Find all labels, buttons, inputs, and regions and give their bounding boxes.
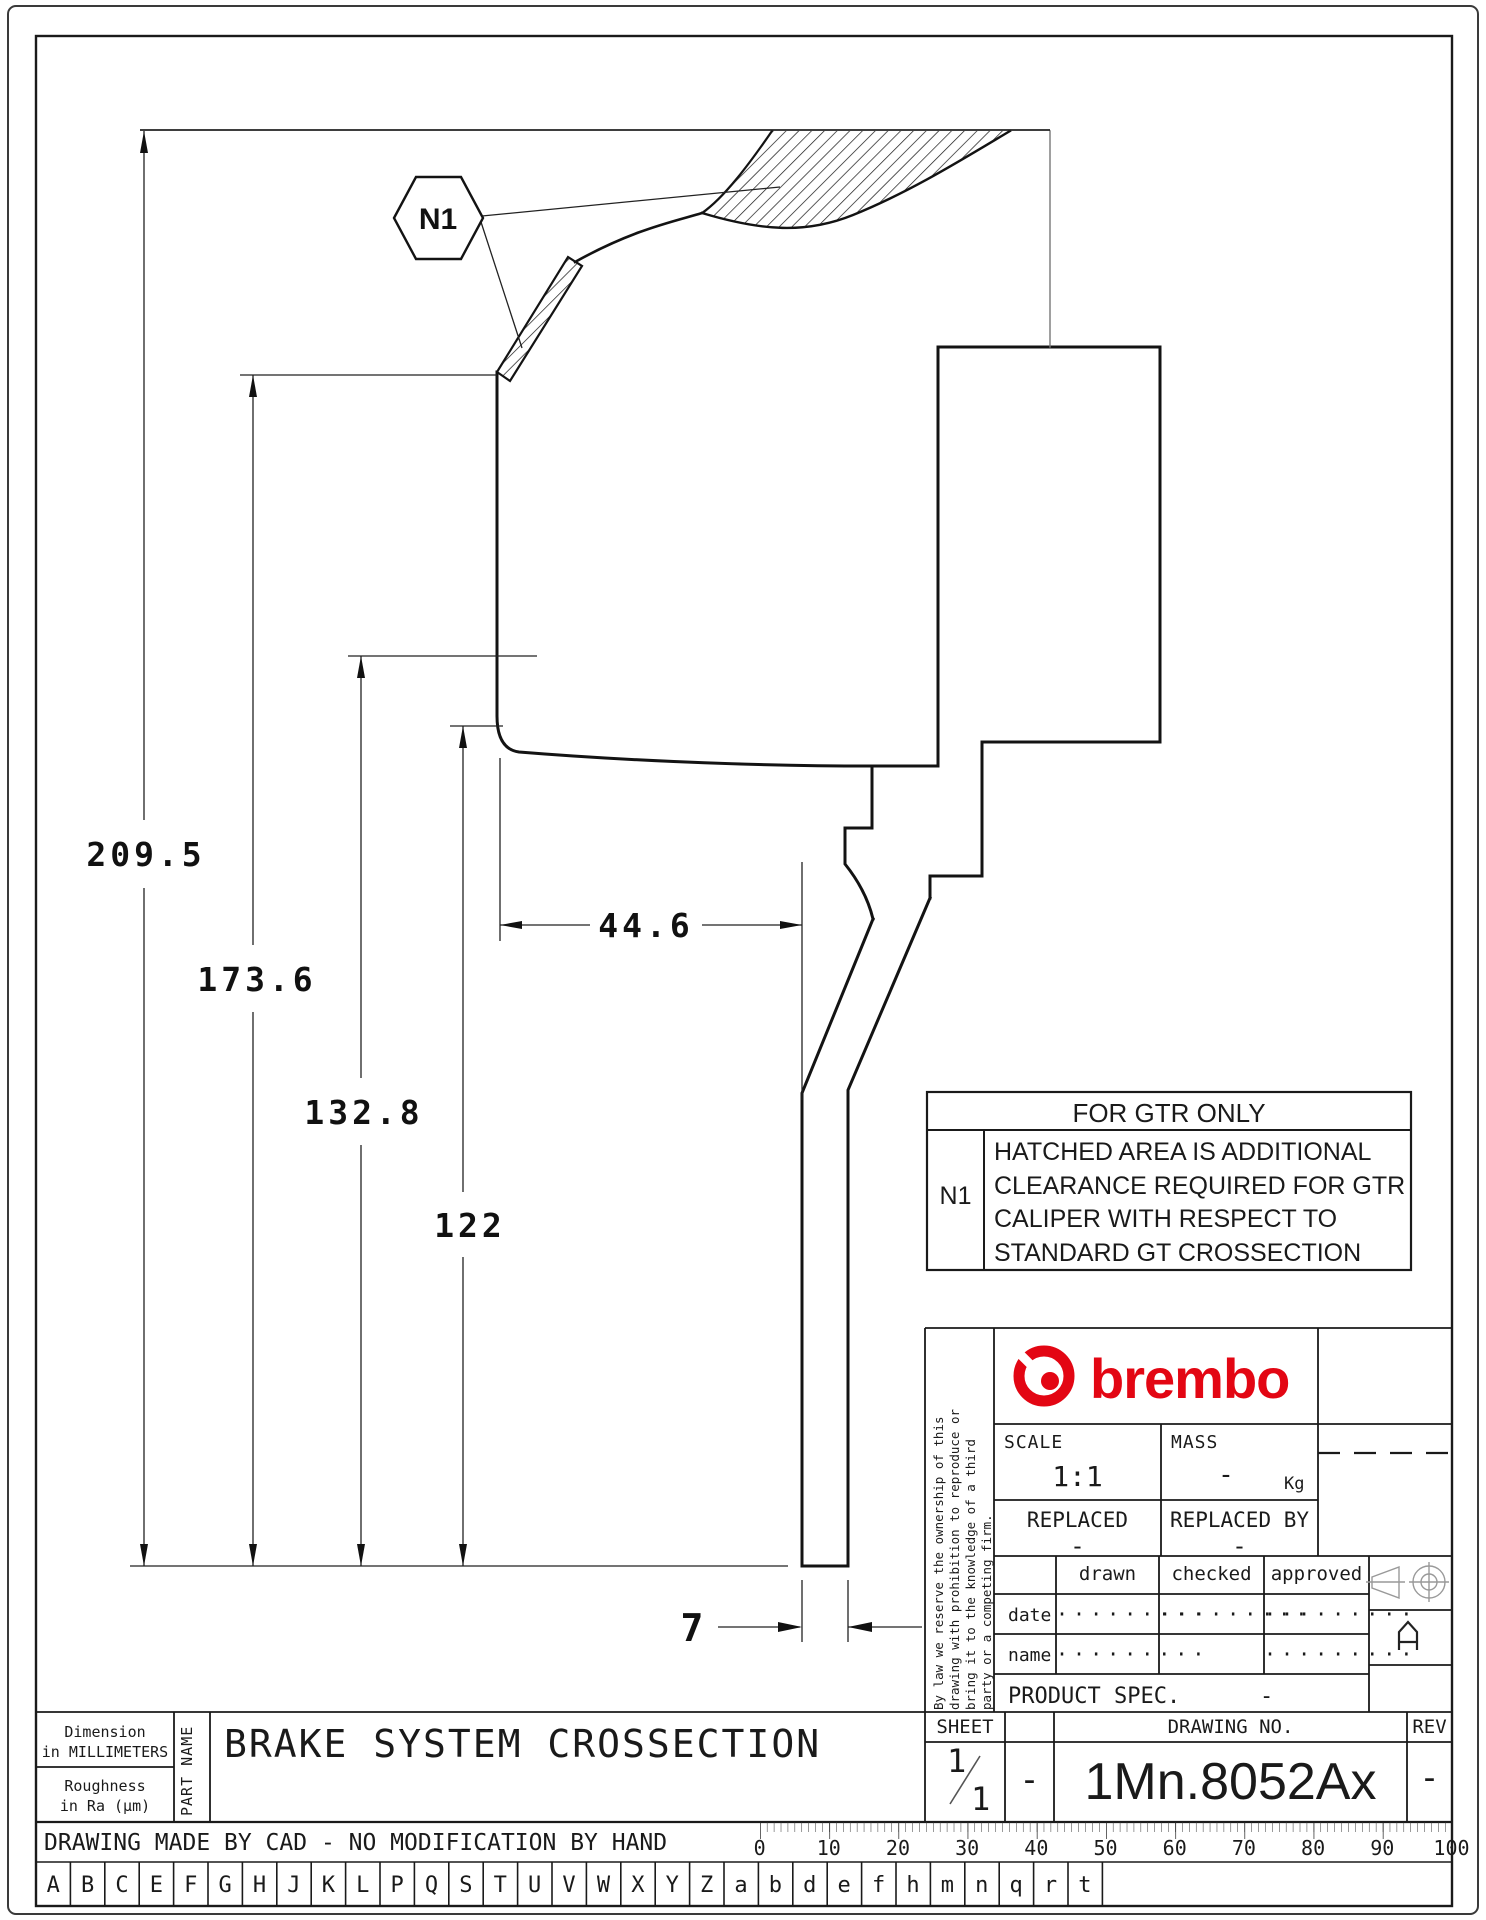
- signoff-header-approved: approved: [1264, 1563, 1369, 1585]
- replaced-by-label: REPLACED BY: [1161, 1508, 1318, 1532]
- letter-cell: P: [380, 1866, 414, 1906]
- letter-cell: S: [449, 1866, 483, 1906]
- gtr-note-line: STANDARD GT CROSSECTION: [994, 1237, 1410, 1271]
- letter-cell: m: [930, 1866, 964, 1906]
- rev-value: -: [1407, 1758, 1452, 1798]
- letter-cell: Q: [414, 1866, 448, 1906]
- letter-cell: n: [965, 1866, 999, 1906]
- ruler-labels: 0102030405060708090100: [725, 1836, 1486, 1860]
- mass-unit: Kg: [1284, 1474, 1304, 1494]
- letter-cell: A: [36, 1866, 70, 1906]
- replaced-label: REPLACED: [994, 1508, 1161, 1532]
- letter-cell: X: [621, 1866, 655, 1906]
- letter-cell: h: [896, 1866, 930, 1906]
- letter-cell: J: [277, 1866, 311, 1906]
- letter-cell: a: [724, 1866, 758, 1906]
- legal-line: party or a competing firm.: [979, 1326, 995, 1710]
- date-drawn-dots: ·········: [1056, 1602, 1159, 1626]
- gtr-note-title: FOR GTR ONLY: [927, 1095, 1411, 1131]
- letter-cell: t: [1068, 1866, 1102, 1906]
- ruler-label: 10: [794, 1836, 863, 1860]
- part-name-label: PART NAME: [178, 1706, 196, 1816]
- signoff-header-checked: checked: [1159, 1563, 1264, 1585]
- replaced-by-value: -: [1161, 1532, 1318, 1560]
- letter-cell: C: [105, 1866, 139, 1906]
- date-approved-dots: ·········: [1264, 1602, 1369, 1626]
- dim-hat-height: 173.6: [197, 960, 316, 999]
- date-checked-dots: ·········: [1159, 1602, 1264, 1626]
- product-spec-value: -: [1260, 1684, 1273, 1709]
- gtr-note-line: HATCHED AREA IS ADDITIONAL: [994, 1136, 1410, 1170]
- dim-total-height: 209.5: [86, 835, 205, 874]
- scale-value: 1:1: [994, 1460, 1161, 1493]
- sheet-label: SHEET: [925, 1716, 1005, 1738]
- drawing-no-label: DRAWING NO.: [1054, 1716, 1407, 1738]
- drawing-sheet: N1: [0, 0, 1486, 1920]
- letter-cell: F: [174, 1866, 208, 1906]
- dimension-values: 209.5 173.6 132.8 122 44.6 7: [86, 835, 703, 1650]
- roughness-note-line2: in Ra (μm): [36, 1796, 174, 1816]
- roughness-note-line1: Roughness: [36, 1776, 174, 1796]
- letter-cell: B: [70, 1866, 104, 1906]
- ruler-label: 20: [863, 1836, 932, 1860]
- letter-cell: e: [827, 1866, 861, 1906]
- name-drawn-dots: ·········: [1056, 1642, 1159, 1666]
- ruler-label: 90: [1348, 1836, 1417, 1860]
- letter-cell: T: [483, 1866, 517, 1906]
- sheet-denominator: 1: [971, 1780, 990, 1818]
- ruler-label: 60: [1140, 1836, 1209, 1860]
- mass-label: MASS: [1171, 1432, 1218, 1453]
- legal-line: bring it to the knowledge of a third: [963, 1326, 979, 1710]
- letter-cell: U: [517, 1866, 551, 1906]
- ruler-label: 0: [725, 1836, 794, 1860]
- name-label: name: [1008, 1645, 1051, 1666]
- date-label: date: [1008, 1605, 1051, 1626]
- mass-value: -: [1161, 1460, 1291, 1490]
- letter-cell: L: [346, 1866, 380, 1906]
- letter-cell: G: [208, 1866, 242, 1906]
- ruler-label: 70: [1209, 1836, 1278, 1860]
- legal-line: drawing with prohibition to reproduce or: [947, 1326, 963, 1710]
- gtr-note-line: CLEARANCE REQUIRED FOR GTR: [994, 1170, 1410, 1204]
- units-note-line1: Dimension: [36, 1722, 174, 1742]
- sheet-dash: -: [1005, 1760, 1054, 1800]
- letter-cell: q: [999, 1866, 1033, 1906]
- letter-cell: Z: [689, 1866, 723, 1906]
- projection-symbol: [1366, 1562, 1449, 1602]
- letter-strip: ABCEFGHJKLPQSTUVWXYZabdefhmnqrt: [36, 1866, 1103, 1906]
- product-spec-label: PRODUCT SPEC.: [1008, 1684, 1180, 1709]
- cad-note: DRAWING MADE BY CAD - NO MODIFICATION BY…: [44, 1830, 667, 1856]
- roughness-note: Roughness in Ra (μm): [36, 1776, 174, 1816]
- legal-line: By law we reserve the ownership of this: [931, 1326, 947, 1710]
- units-note: Dimension in MILLIMETERS: [36, 1722, 174, 1762]
- gtr-note-text: HATCHED AREA IS ADDITIONALCLEARANCE REQU…: [994, 1136, 1410, 1270]
- dimension-lines: [130, 130, 1050, 1642]
- rev-label: REV: [1407, 1716, 1452, 1738]
- ruler-label: 80: [1279, 1836, 1348, 1860]
- letter-cell: K: [311, 1866, 345, 1906]
- dim-band-height: 132.8: [304, 1093, 423, 1132]
- units-note-line2: in MILLIMETERS: [36, 1742, 174, 1762]
- dim-width-offset: 44.6: [598, 906, 693, 945]
- letter-cell: V: [552, 1866, 586, 1906]
- replaced-value: -: [994, 1532, 1161, 1560]
- fraction-slash: [925, 1742, 1005, 1822]
- ruler-label: 30: [933, 1836, 1002, 1860]
- dim-leg-thickness: 7: [681, 1606, 704, 1650]
- letter-cell: Y: [655, 1866, 689, 1906]
- sheet-fraction: 1 1: [925, 1742, 1005, 1822]
- dim-inner-height: 122: [434, 1206, 506, 1245]
- gtr-note-ref: N1: [927, 1182, 984, 1211]
- ruler-label: 100: [1417, 1836, 1486, 1860]
- letter-cell: d: [793, 1866, 827, 1906]
- letter-cell: H: [242, 1866, 276, 1906]
- drawing-linework: N1: [0, 0, 1486, 1920]
- hatch-area-side: [497, 257, 582, 381]
- brembo-wordmark: brembo: [1090, 1346, 1320, 1411]
- name-approved-dots: ·········: [1264, 1642, 1369, 1666]
- part-name: BRAKE SYSTEM CROSSECTION: [224, 1722, 821, 1766]
- hatch-area-top: [702, 131, 1010, 228]
- ruler-label: 40: [1002, 1836, 1071, 1860]
- drawing-number: 1Mn.8052Ax: [1054, 1752, 1407, 1812]
- n1-label: N1: [419, 203, 457, 236]
- letter-cell: W: [586, 1866, 620, 1906]
- scale-label: SCALE: [1004, 1432, 1063, 1453]
- letter-cell: b: [758, 1866, 792, 1906]
- brembo-logo-icon: [1018, 1351, 1069, 1401]
- gtr-note-line: CALIPER WITH RESPECT TO: [994, 1203, 1410, 1237]
- letter-cell: f: [861, 1866, 895, 1906]
- letter-cell: E: [139, 1866, 173, 1906]
- letter-cell: r: [1033, 1866, 1067, 1906]
- ruler-label: 50: [1071, 1836, 1140, 1860]
- signoff-header-drawn: drawn: [1056, 1563, 1159, 1585]
